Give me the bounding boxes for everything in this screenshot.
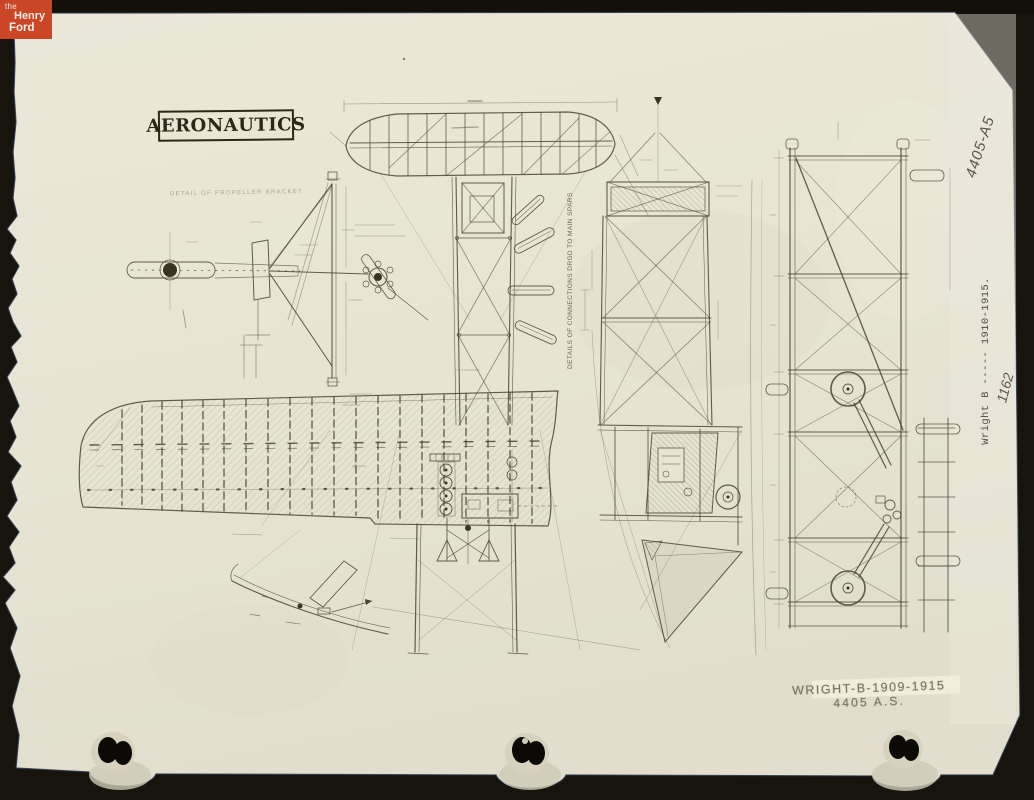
typed-identification-label: Wright B ----- 1910-1915. [980, 266, 992, 456]
punch-hole [505, 733, 549, 773]
henry-ford-logo: the Henry Ford [0, 0, 52, 39]
archival-photo: the Henry Ford AERONAUTICS DETAIL OF PRO… [0, 0, 1034, 800]
logo-word-ford: Ford [9, 23, 52, 35]
logo-word-henry: Henry [14, 11, 52, 22]
punch-hole [883, 730, 923, 768]
aeronautics-masthead: AERONAUTICS [158, 109, 294, 141]
connections-note: DETAILS OF CONNECTIONS DRGD TO MAIN SPAR… [567, 199, 579, 369]
punch-hole [91, 732, 135, 772]
